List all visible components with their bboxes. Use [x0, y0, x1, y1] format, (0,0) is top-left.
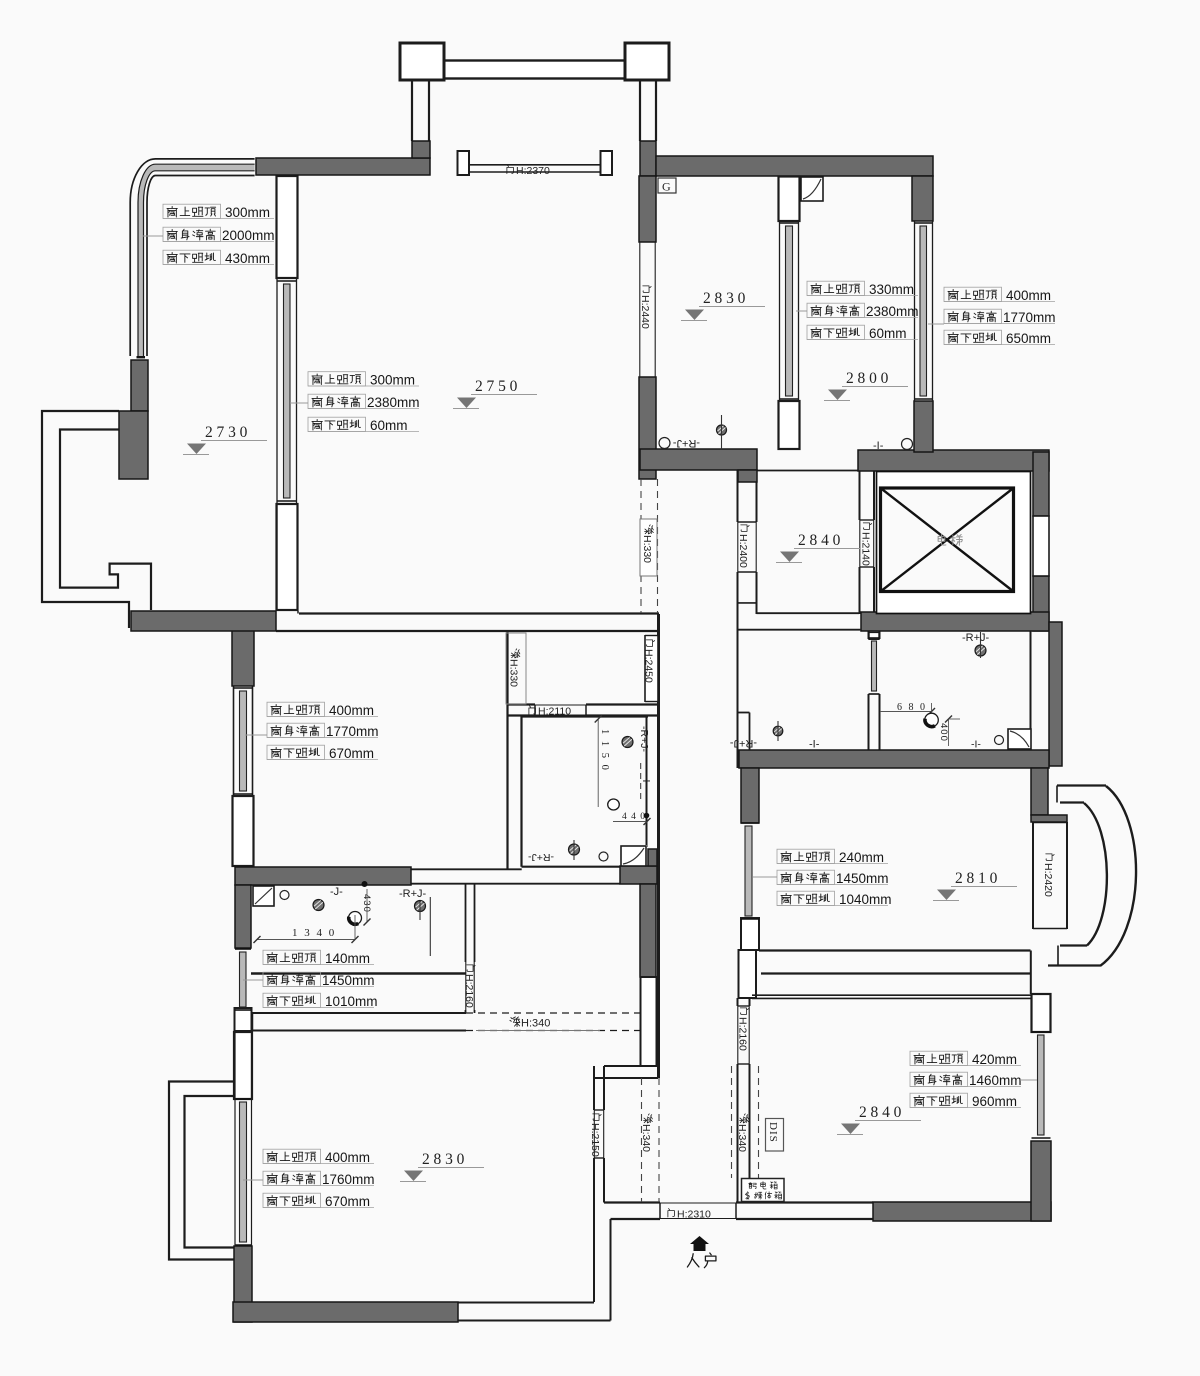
svg-text:2830: 2830: [703, 290, 749, 307]
svg-text:2800: 2800: [846, 370, 892, 387]
svg-text:1450mm: 1450mm: [836, 871, 889, 886]
svg-text:-I-: -I-: [873, 440, 884, 452]
svg-text:H:2420: H:2420: [1042, 863, 1054, 897]
svg-text:H:2450: H:2450: [643, 649, 655, 683]
svg-text:400mm: 400mm: [325, 1150, 370, 1165]
svg-text:-R+J-: -R+J-: [399, 888, 427, 900]
svg-text:1010mm: 1010mm: [325, 994, 378, 1009]
svg-text:1760mm: 1760mm: [322, 1172, 375, 1187]
svg-text:H:2370: H:2370: [516, 165, 550, 177]
svg-text:1 1 5 0: 1 1 5 0: [599, 729, 610, 772]
svg-text:H:2140: H:2140: [860, 532, 872, 566]
svg-text:-J-: -J-: [330, 886, 343, 898]
svg-text:400: 400: [938, 723, 949, 742]
svg-text:H:2110: H:2110: [538, 706, 571, 718]
svg-text:H:2440: H:2440: [639, 295, 651, 329]
svg-text:650mm: 650mm: [1006, 331, 1051, 346]
svg-text:-I-: -I-: [809, 739, 820, 751]
svg-text:H:330: H:330: [641, 535, 653, 563]
svg-text:-R+J-: -R+J-: [672, 437, 700, 449]
svg-text:H:330: H:330: [508, 659, 520, 687]
svg-text:2840: 2840: [798, 532, 844, 549]
svg-text:400mm: 400mm: [329, 703, 374, 718]
svg-text:DIS: DIS: [767, 1122, 779, 1143]
svg-text:330mm: 330mm: [869, 282, 914, 297]
svg-text:2810: 2810: [955, 870, 1001, 887]
svg-text:1770mm: 1770mm: [326, 724, 379, 739]
svg-text:H:2160: H:2160: [737, 1017, 749, 1051]
svg-text:2840: 2840: [859, 1104, 905, 1121]
svg-text:1450mm: 1450mm: [322, 973, 375, 988]
svg-text:300mm: 300mm: [225, 205, 270, 220]
svg-text:H:340: H:340: [521, 1018, 550, 1030]
svg-text:H:2400: H:2400: [737, 534, 749, 568]
svg-text:670mm: 670mm: [329, 746, 374, 761]
svg-text:H:2160: H:2160: [463, 974, 475, 1008]
svg-text:60mm: 60mm: [370, 418, 408, 433]
svg-text:H:340: H:340: [640, 1124, 652, 1152]
svg-text:670mm: 670mm: [325, 1194, 370, 1209]
svg-text:430mm: 430mm: [225, 251, 270, 266]
svg-text:2000mm: 2000mm: [222, 228, 275, 243]
svg-text:2730: 2730: [205, 424, 251, 441]
svg-text:4 4 0: 4 4 0: [622, 812, 646, 822]
svg-text:2830: 2830: [422, 1151, 468, 1168]
svg-text:430: 430: [361, 894, 372, 913]
svg-text:1460mm: 1460mm: [969, 1073, 1022, 1088]
svg-text:240mm: 240mm: [839, 850, 884, 865]
svg-text:H:2310: H:2310: [677, 1209, 711, 1221]
svg-text:2380mm: 2380mm: [866, 304, 919, 319]
svg-text:-R+J-: -R+J-: [528, 851, 554, 863]
svg-text:1040mm: 1040mm: [839, 892, 892, 907]
svg-text:2380mm: 2380mm: [367, 395, 420, 410]
svg-text:2750: 2750: [475, 378, 521, 395]
svg-text:-I-: -I-: [640, 776, 652, 786]
svg-text:H:2150: H:2150: [589, 1123, 601, 1157]
svg-text:420mm: 420mm: [972, 1052, 1017, 1067]
svg-text:960mm: 960mm: [972, 1094, 1017, 1109]
svg-text:1 3 4 0: 1 3 4 0: [292, 927, 336, 939]
svg-text:300mm: 300mm: [370, 372, 415, 387]
svg-text:-R+J-: -R+J-: [729, 737, 757, 749]
svg-text:140mm: 140mm: [325, 951, 370, 966]
svg-text:1770mm: 1770mm: [1003, 310, 1056, 325]
svg-text:400mm: 400mm: [1006, 288, 1051, 303]
svg-text:60mm: 60mm: [869, 326, 907, 341]
svg-text:-R+J-: -R+J-: [962, 632, 990, 644]
svg-text:-R+J-: -R+J-: [638, 726, 650, 752]
svg-text:G: G: [662, 180, 671, 194]
svg-text:H:340: H:340: [736, 1124, 748, 1152]
svg-text:-I-: -I-: [971, 739, 981, 751]
